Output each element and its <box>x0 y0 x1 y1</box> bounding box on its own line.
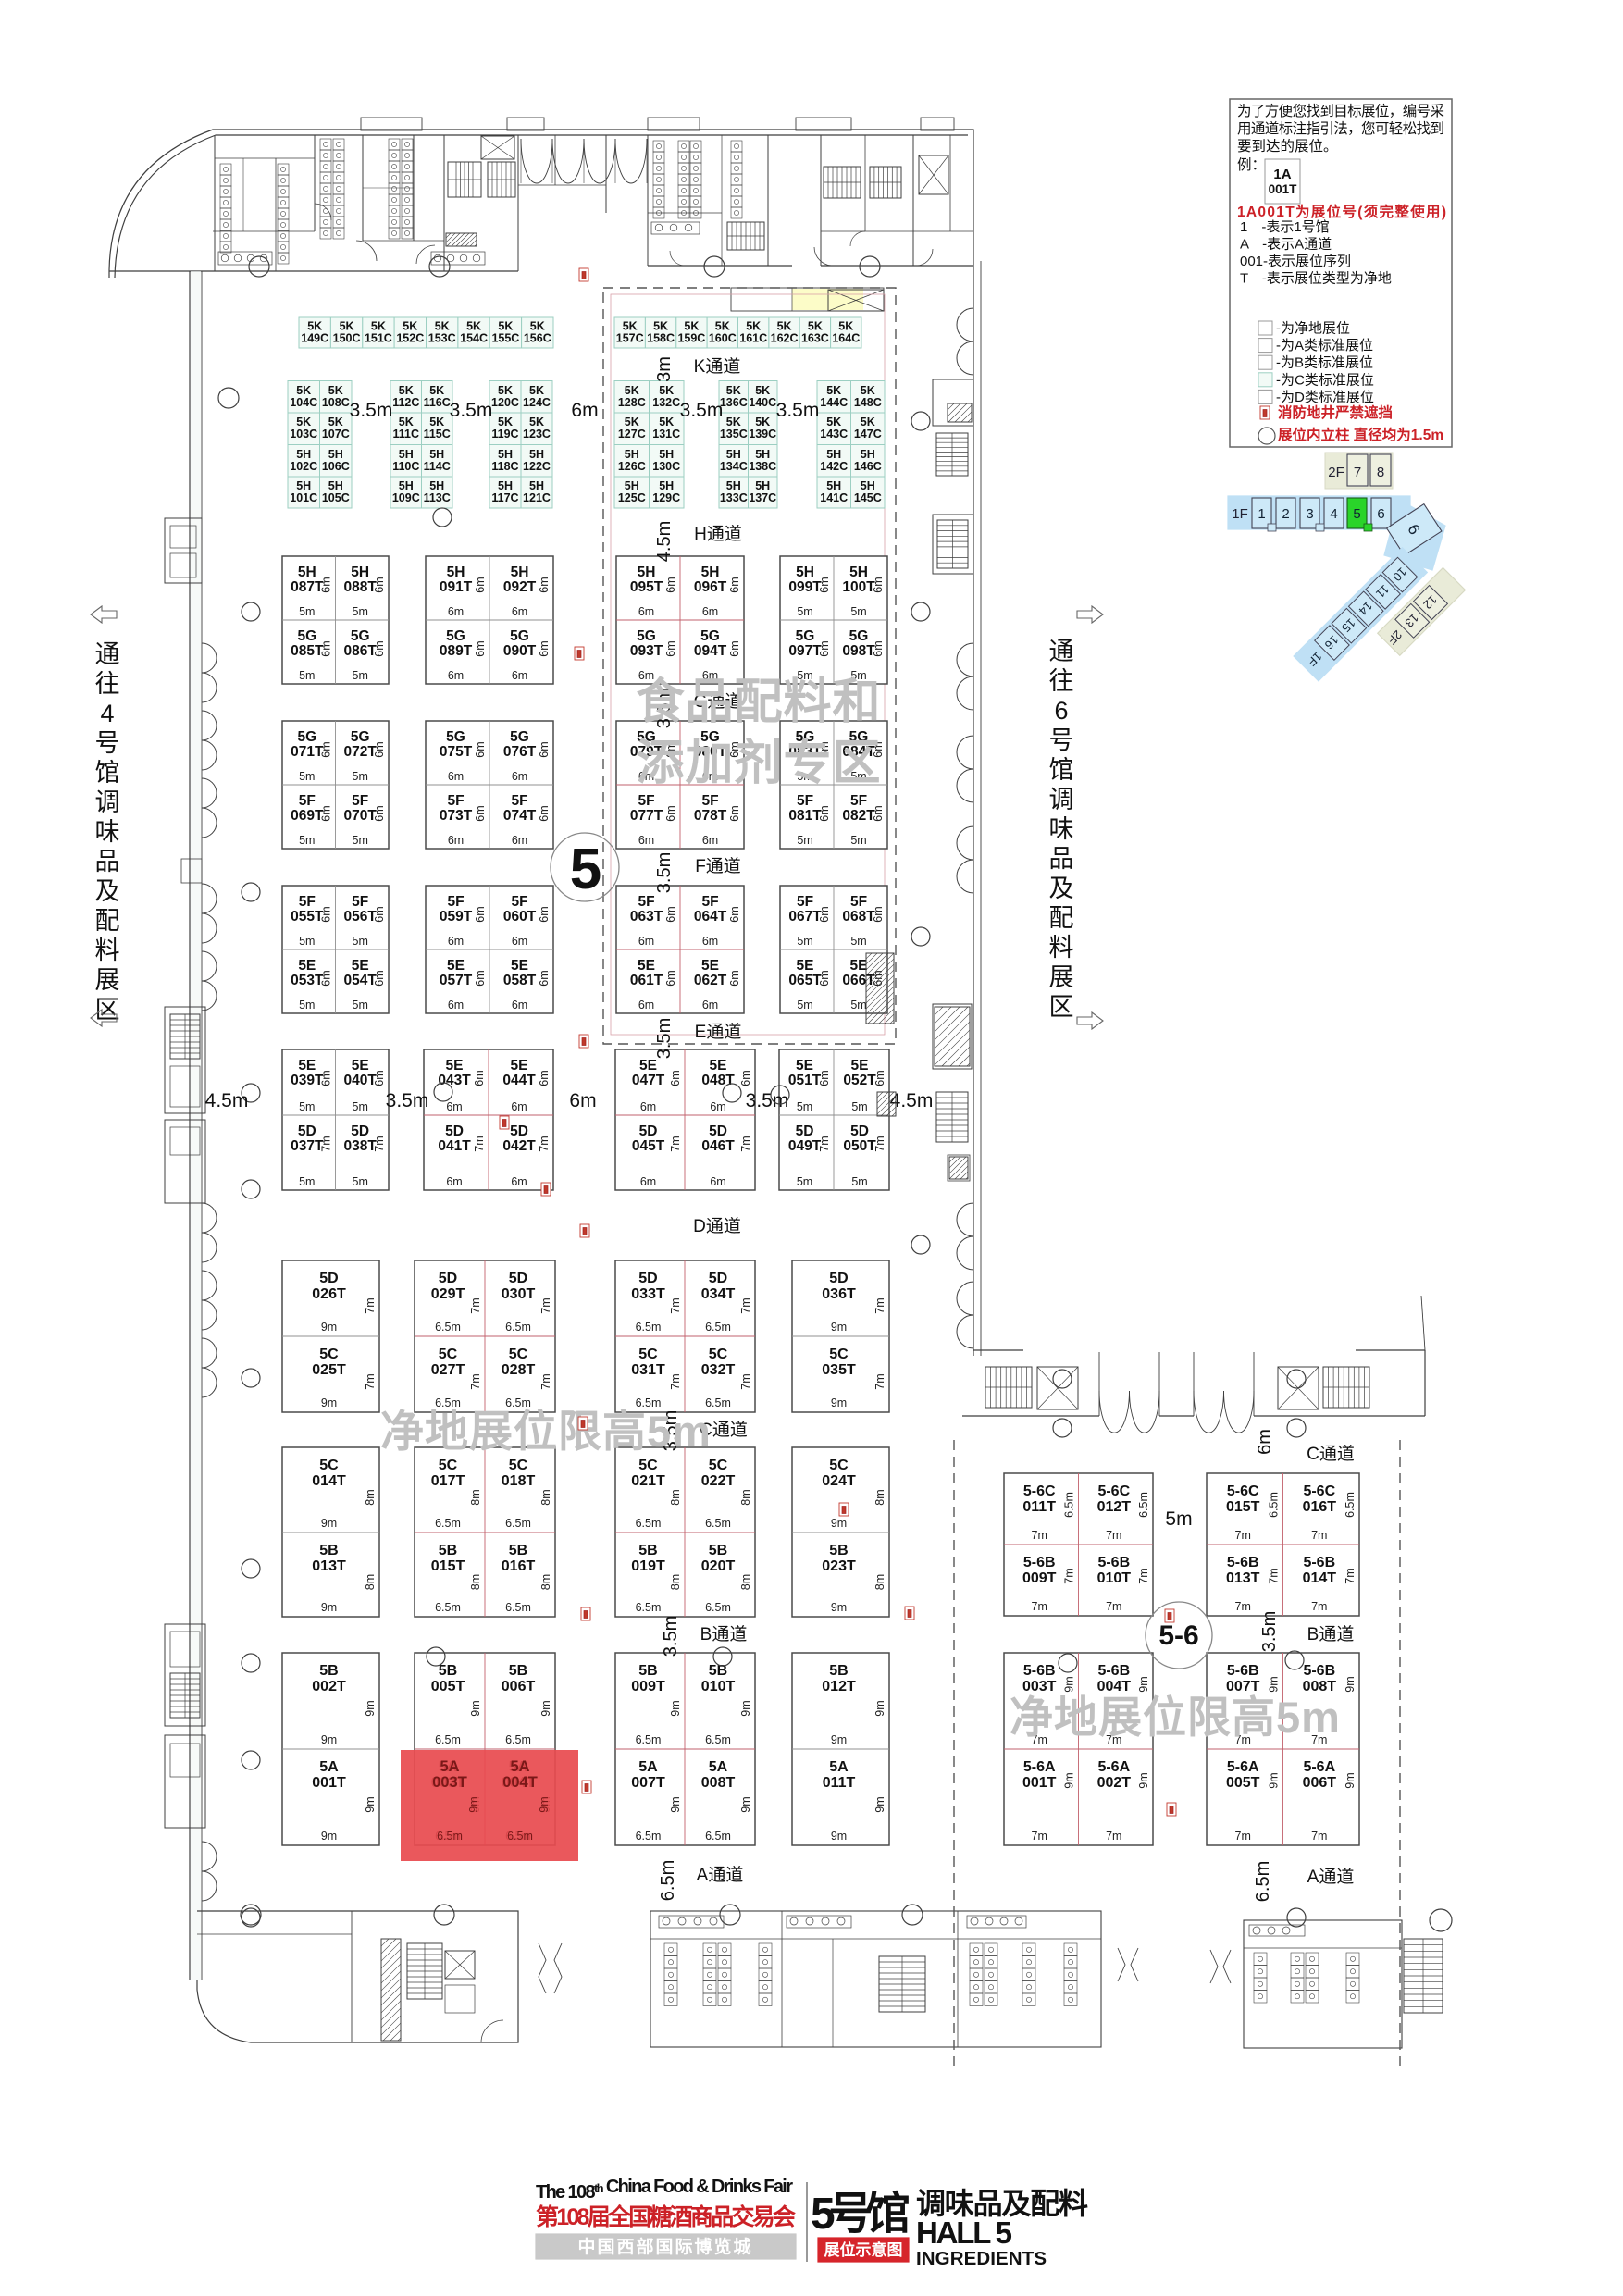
svg-text:5H: 5H <box>625 479 639 492</box>
svg-text:112C: 112C <box>392 396 419 409</box>
svg-text:136C: 136C <box>720 396 748 409</box>
svg-text:9m: 9m <box>831 1733 847 1746</box>
svg-text:6m: 6m <box>538 805 551 821</box>
svg-text:014T: 014T <box>312 1473 346 1489</box>
svg-text:5D: 5D <box>298 1123 316 1139</box>
svg-text:5H: 5H <box>638 565 656 580</box>
svg-text:9m: 9m <box>1063 1772 1076 1788</box>
svg-text:6m: 6m <box>818 577 831 592</box>
svg-text:9m: 9m <box>321 1321 337 1334</box>
svg-text:5B: 5B <box>829 1663 848 1679</box>
svg-text:5m: 5m <box>797 1175 812 1188</box>
svg-text:098T: 098T <box>842 643 875 659</box>
svg-text:6.5m: 6.5m <box>1268 1492 1281 1518</box>
svg-text:6.5m: 6.5m <box>705 1601 731 1614</box>
svg-text:065T: 065T <box>788 973 822 988</box>
svg-text:7m: 7m <box>873 1373 886 1389</box>
svg-text:093T: 093T <box>630 643 663 659</box>
svg-text:002T: 002T <box>312 1679 346 1694</box>
svg-text:6m: 6m <box>872 970 885 986</box>
svg-text:6.5m: 6.5m <box>505 1601 531 1614</box>
svg-text:140C: 140C <box>749 396 776 409</box>
svg-text:7m: 7m <box>1106 1600 1121 1613</box>
svg-text:5K: 5K <box>429 416 444 428</box>
svg-text:5H: 5H <box>511 565 529 580</box>
svg-text:5D: 5D <box>510 1123 528 1139</box>
svg-text:5D: 5D <box>638 1271 657 1286</box>
svg-text:5B: 5B <box>439 1663 457 1679</box>
svg-text:109C: 109C <box>392 491 420 504</box>
svg-text:097T: 097T <box>788 643 822 659</box>
svg-text:132C: 132C <box>652 396 680 409</box>
svg-text:5m: 5m <box>851 1100 867 1113</box>
svg-text:6m: 6m <box>512 834 527 847</box>
svg-text:158C: 158C <box>647 332 675 345</box>
svg-text:5m: 5m <box>353 935 368 948</box>
svg-text:139C: 139C <box>749 428 776 441</box>
svg-text:115C: 115C <box>424 428 451 441</box>
svg-text:031T: 031T <box>631 1362 665 1378</box>
svg-text:025T: 025T <box>312 1362 346 1378</box>
svg-text:6m: 6m <box>538 640 551 656</box>
svg-text:5m: 5m <box>353 999 368 1011</box>
svg-text:5m: 5m <box>299 935 315 948</box>
svg-text:6m: 6m <box>739 1070 752 1086</box>
svg-text:070T: 070T <box>344 808 378 824</box>
svg-text:6m: 6m <box>664 906 677 922</box>
svg-text:133C: 133C <box>720 491 748 504</box>
svg-text:9m: 9m <box>321 1733 337 1746</box>
svg-text:007T: 007T <box>631 1775 665 1791</box>
svg-text:067T: 067T <box>788 909 822 925</box>
svg-text:2: 2 <box>1282 506 1289 522</box>
svg-text:5E: 5E <box>298 1058 316 1074</box>
svg-text:5m: 5m <box>353 1100 368 1113</box>
svg-text:馆: 馆 <box>1049 756 1074 784</box>
svg-text:131C: 131C <box>652 428 680 441</box>
svg-text:116C: 116C <box>424 396 451 409</box>
svg-text:5K: 5K <box>684 320 699 333</box>
svg-text:068T: 068T <box>842 909 875 925</box>
svg-text:154C: 154C <box>460 332 488 345</box>
svg-text:7m: 7m <box>873 1297 886 1313</box>
svg-text:5-6B: 5-6B <box>1097 1555 1130 1570</box>
svg-text:7m: 7m <box>473 1136 486 1151</box>
svg-text:5F: 5F <box>352 793 368 809</box>
svg-text:3.5m: 3.5m <box>661 1616 681 1657</box>
svg-text:5m: 5m <box>797 999 812 1011</box>
svg-text:4: 4 <box>1330 506 1337 522</box>
svg-text:149C: 149C <box>301 332 328 345</box>
svg-text:9m: 9m <box>321 1396 337 1409</box>
svg-text:5F: 5F <box>447 793 464 809</box>
svg-text:6m: 6m <box>640 1175 656 1188</box>
svg-text:5m: 5m <box>797 834 812 847</box>
svg-text:5G: 5G <box>510 628 529 644</box>
svg-text:5D: 5D <box>709 1271 727 1286</box>
svg-text:075T: 075T <box>440 744 473 760</box>
svg-text:5K: 5K <box>340 320 354 333</box>
svg-text:7m: 7m <box>364 1297 377 1313</box>
svg-text:155C: 155C <box>491 332 519 345</box>
svg-text:153C: 153C <box>428 332 456 345</box>
svg-text:5m: 5m <box>299 1100 315 1113</box>
svg-text:B通道: B通道 <box>1307 1624 1355 1644</box>
svg-text:6m: 6m <box>710 1100 725 1113</box>
svg-text:9m: 9m <box>1063 1676 1076 1692</box>
svg-text:9m: 9m <box>538 1796 551 1812</box>
svg-text:122C: 122C <box>523 460 551 473</box>
svg-text:5H: 5H <box>796 565 814 580</box>
svg-text:HALL 5: HALL 5 <box>916 2215 1012 2250</box>
svg-text:5m: 5m <box>353 669 368 682</box>
svg-text:5K: 5K <box>328 416 343 428</box>
svg-text:072T: 072T <box>344 744 378 760</box>
svg-text:5B: 5B <box>709 1543 727 1558</box>
svg-text:6m: 6m <box>728 805 741 821</box>
svg-text:061T: 061T <box>630 973 663 988</box>
svg-text:8m: 8m <box>364 1489 377 1505</box>
svg-text:6m: 6m <box>512 935 527 948</box>
svg-text:128C: 128C <box>618 396 646 409</box>
svg-text:5D: 5D <box>319 1271 338 1286</box>
svg-text:5H: 5H <box>659 479 674 492</box>
svg-text:5C: 5C <box>638 1458 658 1473</box>
svg-text:6.5m: 6.5m <box>435 1733 461 1746</box>
svg-text:6m: 6m <box>448 935 464 948</box>
svg-text:5: 5 <box>570 838 601 901</box>
svg-text:5D: 5D <box>639 1123 658 1139</box>
svg-text:016T: 016T <box>502 1558 536 1574</box>
svg-text:5G: 5G <box>351 628 370 644</box>
svg-text:091T: 091T <box>440 579 473 595</box>
svg-text:6m: 6m <box>669 1070 682 1086</box>
svg-text:8m: 8m <box>539 1574 552 1590</box>
svg-text:6m: 6m <box>1255 1429 1275 1455</box>
svg-text:038T: 038T <box>344 1138 378 1154</box>
svg-text:5G: 5G <box>351 729 370 745</box>
svg-text:5H: 5H <box>447 565 465 580</box>
svg-text:3.5m: 3.5m <box>680 400 724 421</box>
svg-text:9m: 9m <box>669 1700 682 1716</box>
svg-text:6m: 6m <box>638 834 654 847</box>
svg-text:T -表示展位类型为净地: T -表示展位类型为净地 <box>1240 271 1392 287</box>
svg-text:5F: 5F <box>299 894 316 910</box>
svg-text:5H: 5H <box>399 479 414 492</box>
svg-text:6.5m: 6.5m <box>636 1830 662 1843</box>
svg-text:6m: 6m <box>474 970 487 986</box>
svg-text:130C: 130C <box>652 460 680 473</box>
svg-text:5F: 5F <box>797 894 813 910</box>
svg-text:5-6A: 5-6A <box>1023 1759 1056 1775</box>
svg-text:5H: 5H <box>498 448 513 461</box>
svg-text:7m: 7m <box>1235 1600 1251 1613</box>
svg-text:中国西部国际博览城: 中国西部国际博览城 <box>577 2236 752 2257</box>
svg-text:6m: 6m <box>448 834 464 847</box>
svg-text:082T: 082T <box>842 808 875 824</box>
svg-text:6m: 6m <box>728 906 741 922</box>
svg-text:号: 号 <box>95 729 120 757</box>
svg-text:005T: 005T <box>1226 1775 1260 1791</box>
svg-text:例：: 例： <box>1237 156 1266 173</box>
svg-text:3.5m: 3.5m <box>350 400 393 421</box>
svg-text:040T: 040T <box>344 1073 378 1088</box>
svg-text:6m: 6m <box>538 970 551 986</box>
svg-text:028T: 028T <box>502 1362 536 1378</box>
svg-text:161C: 161C <box>739 332 767 345</box>
svg-text:106C: 106C <box>322 460 350 473</box>
svg-text:1 -表示1号馆: 1 -表示1号馆 <box>1240 219 1330 235</box>
svg-text:088T: 088T <box>344 579 378 595</box>
svg-text:159C: 159C <box>677 332 705 345</box>
svg-text:5-6B: 5-6B <box>1097 1663 1130 1679</box>
svg-text:1A001T为展位号(须完整使用): 1A001T为展位号(须完整使用) <box>1237 203 1446 220</box>
svg-text:8m: 8m <box>669 1489 682 1505</box>
svg-text:5A: 5A <box>829 1759 849 1775</box>
svg-text:6.5m: 6.5m <box>1063 1492 1076 1518</box>
svg-text:-为A类标准展位: -为A类标准展位 <box>1276 338 1373 354</box>
svg-text:5K: 5K <box>403 320 417 333</box>
svg-text:5m: 5m <box>850 999 866 1011</box>
svg-text:005T: 005T <box>431 1679 465 1694</box>
svg-text:5C: 5C <box>709 1458 728 1473</box>
svg-text:3.5m: 3.5m <box>386 1090 429 1111</box>
svg-text:展位示意图: 展位示意图 <box>824 2240 903 2259</box>
svg-text:品: 品 <box>95 848 120 875</box>
svg-text:5H: 5H <box>498 479 513 492</box>
svg-text:5K: 5K <box>296 384 311 397</box>
svg-text:052T: 052T <box>843 1073 876 1088</box>
svg-text:089T: 089T <box>440 643 473 659</box>
svg-text:8m: 8m <box>469 1489 482 1505</box>
svg-text:5-6A: 5-6A <box>1097 1759 1130 1775</box>
svg-text:9m: 9m <box>873 1700 886 1716</box>
svg-text:142C: 142C <box>820 460 848 473</box>
svg-text:通: 通 <box>1049 638 1074 665</box>
svg-text:5m: 5m <box>299 999 315 1011</box>
svg-text:5-6C: 5-6C <box>1227 1483 1259 1499</box>
svg-text:3m: 3m <box>654 356 675 382</box>
svg-text:152C: 152C <box>396 332 424 345</box>
svg-text:5-6: 5-6 <box>1158 1620 1198 1651</box>
svg-text:8m: 8m <box>364 1574 377 1590</box>
svg-text:014T: 014T <box>1303 1570 1337 1586</box>
svg-text:要到达的展位。: 要到达的展位。 <box>1237 138 1338 155</box>
svg-text:5F: 5F <box>850 793 867 809</box>
svg-text:001T: 001T <box>1022 1775 1057 1791</box>
svg-text:163C: 163C <box>801 332 829 345</box>
svg-text:7m: 7m <box>320 1136 333 1151</box>
svg-text:3.5m: 3.5m <box>654 1018 675 1059</box>
svg-text:5-6B: 5-6B <box>1023 1555 1056 1570</box>
svg-text:6.5m: 6.5m <box>636 1733 662 1746</box>
svg-text:034T: 034T <box>701 1286 736 1302</box>
svg-text:110C: 110C <box>392 460 419 473</box>
svg-text:9m: 9m <box>1268 1676 1281 1692</box>
svg-text:5K: 5K <box>529 416 544 428</box>
svg-text:6m: 6m <box>702 834 718 847</box>
svg-text:048T: 048T <box>701 1073 735 1088</box>
svg-text:6m: 6m <box>818 906 831 922</box>
svg-text:5-6B: 5-6B <box>1023 1663 1056 1679</box>
svg-text:1F: 1F <box>1232 506 1248 522</box>
svg-text:6m: 6m <box>664 805 677 821</box>
svg-text:119C: 119C <box>491 428 518 441</box>
svg-text:013T: 013T <box>1226 1570 1260 1586</box>
svg-text:4.5m: 4.5m <box>654 521 675 562</box>
svg-text:5F: 5F <box>850 894 867 910</box>
svg-text:6m: 6m <box>638 605 654 618</box>
svg-text:013T: 013T <box>312 1558 346 1574</box>
svg-text:5C: 5C <box>829 1347 849 1362</box>
svg-text:060T: 060T <box>503 909 537 925</box>
svg-text:5H: 5H <box>726 479 741 492</box>
svg-text:9m: 9m <box>831 1321 847 1334</box>
svg-text:7m: 7m <box>1137 1568 1150 1583</box>
svg-text:032T: 032T <box>701 1362 736 1378</box>
svg-text:011T: 011T <box>1022 1499 1056 1515</box>
svg-text:5H: 5H <box>826 479 841 492</box>
svg-text:009T: 009T <box>631 1679 665 1694</box>
svg-text:5H: 5H <box>529 448 544 461</box>
svg-text:5E: 5E <box>851 1058 869 1074</box>
svg-text:042T: 042T <box>502 1138 536 1154</box>
svg-text:展位内立柱 直径均为1.5m: 展位内立柱 直径均为1.5m <box>1278 426 1443 443</box>
svg-text:6m: 6m <box>474 741 487 757</box>
svg-text:104C: 104C <box>290 396 317 409</box>
svg-text:5H: 5H <box>399 448 414 461</box>
svg-text:味: 味 <box>95 818 120 846</box>
svg-text:7m: 7m <box>1032 1529 1047 1542</box>
svg-text:5H: 5H <box>625 448 639 461</box>
svg-text:5H: 5H <box>296 479 311 492</box>
svg-text:5H: 5H <box>296 448 311 461</box>
svg-text:135C: 135C <box>720 428 748 441</box>
svg-text:6m: 6m <box>728 640 741 656</box>
svg-text:5m: 5m <box>353 1175 368 1188</box>
svg-text:012T: 012T <box>1097 1499 1132 1515</box>
svg-text:-为净地展位: -为净地展位 <box>1276 321 1350 337</box>
svg-text:7m: 7m <box>1032 1600 1047 1613</box>
svg-text:A -表示A通道: A -表示A通道 <box>1240 237 1332 253</box>
svg-text:7m: 7m <box>669 1297 682 1313</box>
svg-text:062T: 062T <box>694 973 727 988</box>
svg-text:6.5m: 6.5m <box>636 1601 662 1614</box>
svg-text:5K: 5K <box>755 416 770 428</box>
svg-text:6m: 6m <box>373 970 386 986</box>
svg-text:5m: 5m <box>850 834 866 847</box>
svg-text:7m: 7m <box>373 1136 386 1151</box>
svg-text:092T: 092T <box>503 579 537 595</box>
svg-text:6m: 6m <box>373 805 386 821</box>
svg-text:5B: 5B <box>439 1543 457 1558</box>
svg-text:094T: 094T <box>694 643 727 659</box>
svg-text:3.5m: 3.5m <box>746 1090 789 1111</box>
svg-text:6.5m: 6.5m <box>435 1321 461 1334</box>
svg-text:5K: 5K <box>399 384 414 397</box>
svg-text:9m: 9m <box>467 1796 480 1812</box>
svg-text:8m: 8m <box>873 1489 886 1505</box>
svg-text:145C: 145C <box>854 491 882 504</box>
svg-text:6m: 6m <box>373 741 386 757</box>
svg-text:5号馆: 5号馆 <box>811 2190 911 2239</box>
svg-text:002T: 002T <box>1097 1775 1132 1791</box>
svg-text:5K: 5K <box>659 384 674 397</box>
svg-text:6m: 6m <box>320 1070 333 1086</box>
svg-text:5A: 5A <box>319 1759 339 1775</box>
svg-text:5K: 5K <box>726 416 741 428</box>
svg-text:162C: 162C <box>771 332 799 345</box>
svg-text:5K: 5K <box>838 320 853 333</box>
svg-text:9m: 9m <box>1344 1772 1357 1788</box>
svg-text:5K: 5K <box>307 320 322 333</box>
svg-text:004T: 004T <box>502 1774 538 1791</box>
svg-text:5K: 5K <box>530 320 545 333</box>
svg-text:6m: 6m <box>473 1070 486 1086</box>
svg-text:5C: 5C <box>638 1347 658 1362</box>
svg-text:051T: 051T <box>788 1073 822 1088</box>
svg-text:6m: 6m <box>320 805 333 821</box>
svg-text:010T: 010T <box>701 1679 736 1694</box>
svg-text:5m: 5m <box>299 605 315 618</box>
svg-text:6m: 6m <box>373 577 386 592</box>
svg-text:150C: 150C <box>333 332 361 345</box>
svg-text:区: 区 <box>1049 993 1074 1021</box>
svg-text:105C: 105C <box>322 491 350 504</box>
svg-text:9m: 9m <box>539 1700 552 1716</box>
svg-text:5K: 5K <box>371 320 386 333</box>
svg-text:6.5m: 6.5m <box>437 1830 463 1843</box>
svg-text:036T: 036T <box>822 1286 856 1302</box>
svg-text:5C: 5C <box>509 1458 528 1473</box>
svg-text:5B: 5B <box>638 1543 657 1558</box>
svg-text:5H: 5H <box>351 565 369 580</box>
svg-text:134C: 134C <box>720 460 748 473</box>
svg-text:9m: 9m <box>1137 1772 1150 1788</box>
svg-text:6.5m: 6.5m <box>505 1733 531 1746</box>
svg-text:5F: 5F <box>447 894 464 910</box>
svg-text:5m: 5m <box>797 1100 812 1113</box>
svg-text:5E: 5E <box>638 958 655 974</box>
svg-text:-为C类标准展位: -为C类标准展位 <box>1276 372 1374 388</box>
svg-text:5E: 5E <box>639 1058 657 1074</box>
svg-text:029T: 029T <box>431 1286 465 1302</box>
svg-text:147C: 147C <box>854 428 882 441</box>
svg-text:6.5m: 6.5m <box>505 1517 531 1530</box>
svg-text:6m: 6m <box>512 770 527 783</box>
svg-text:9m: 9m <box>469 1700 482 1716</box>
svg-text:006T: 006T <box>502 1679 536 1694</box>
svg-text:7m: 7m <box>669 1136 682 1151</box>
svg-text:5C: 5C <box>709 1347 728 1362</box>
svg-text:7m: 7m <box>739 1136 752 1151</box>
svg-text:7m: 7m <box>1106 1830 1121 1843</box>
svg-text:6m: 6m <box>320 741 333 757</box>
svg-text:5E: 5E <box>447 958 465 974</box>
svg-text:5m: 5m <box>299 1175 315 1188</box>
svg-text:120C: 120C <box>491 396 519 409</box>
svg-text:5C: 5C <box>509 1347 528 1362</box>
svg-text:5F: 5F <box>299 793 316 809</box>
svg-text:-为B类标准展位: -为B类标准展位 <box>1276 355 1373 371</box>
svg-text:023T: 023T <box>822 1558 856 1574</box>
svg-text:6.5m: 6.5m <box>1344 1492 1357 1518</box>
svg-text:5m: 5m <box>797 935 812 948</box>
svg-text:9m: 9m <box>831 1601 847 1614</box>
svg-text:用通道标注指引法，您可轻松找到: 用通道标注指引法，您可轻松找到 <box>1237 120 1444 137</box>
svg-text:012T: 012T <box>822 1679 856 1694</box>
svg-text:8m: 8m <box>669 1574 682 1590</box>
